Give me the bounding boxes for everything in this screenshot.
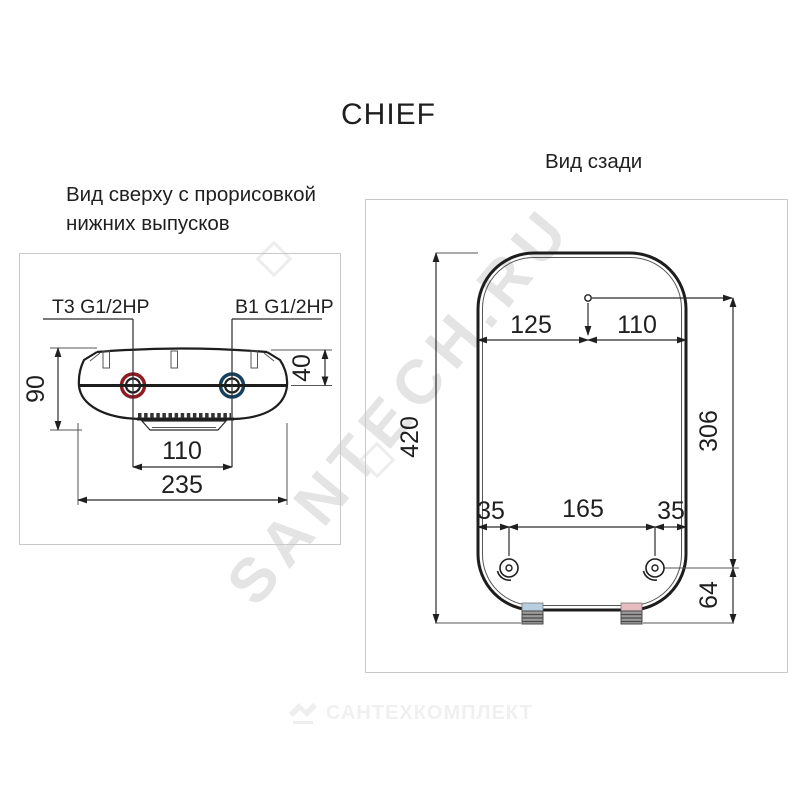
keyhole-slot-left	[498, 559, 519, 580]
page-title: CHIEF	[341, 98, 436, 132]
cold-outlet-label: В1 G1/2HP	[235, 296, 334, 318]
svg-text:35: 35	[477, 497, 505, 525]
dim-306: 306	[695, 298, 733, 568]
rear-view-drawing: 125 110 420 306 64 35 165 35	[365, 199, 788, 673]
hot-outlet-pipe	[621, 603, 642, 624]
footer-brand-watermark: САНТЕХКОМПЛЕКТ	[286, 700, 533, 726]
footer-brand-text: САНТЕХКОМПЛЕКТ	[326, 702, 533, 725]
dim-125-110: 125 110	[478, 311, 686, 340]
top-view-title-line2: нижних выпусков	[66, 209, 316, 238]
rear-view-panel-border	[366, 200, 788, 673]
svg-text:125: 125	[510, 311, 552, 339]
cable-hole	[585, 295, 591, 301]
top-view-drawing: Т3 G1/2HP В1 G1/2HP 90 4	[19, 253, 341, 545]
dim-110: 110	[133, 437, 232, 467]
svg-text:306: 306	[695, 410, 723, 452]
dim-420: 420	[396, 253, 478, 623]
top-view-title: Вид сверху с прорисовкой нижних выпусков	[66, 180, 316, 238]
svg-text:64: 64	[695, 581, 723, 609]
rear-view-title: Вид сзади	[545, 150, 642, 174]
svg-text:35: 35	[657, 497, 685, 525]
dim-90: 90	[22, 348, 97, 430]
heater-body-rear	[478, 253, 686, 610]
svg-text:420: 420	[396, 416, 424, 458]
cold-inlet-pipe	[522, 603, 543, 624]
svg-text:40: 40	[288, 354, 316, 382]
svg-text:110: 110	[617, 311, 657, 339]
bottom-bracket	[142, 421, 226, 430]
dim-35-165-35: 35 165 35	[477, 495, 686, 556]
top-view-title-line1: Вид сверху с прорисовкой	[66, 180, 316, 209]
svg-text:90: 90	[22, 375, 50, 403]
hot-outlet-label: Т3 G1/2HP	[52, 296, 150, 318]
dim-64: 64	[695, 568, 733, 623]
svg-text:165: 165	[562, 495, 604, 523]
mounting-tab	[171, 351, 178, 368]
dim-40: 40	[271, 350, 332, 386]
mounting-tab	[251, 351, 258, 368]
santehkomplekt-logo-icon	[286, 700, 320, 726]
mounting-tab	[103, 351, 110, 368]
svg-text:235: 235	[161, 471, 203, 499]
svg-text:110: 110	[162, 437, 202, 465]
keyhole-slot-right	[644, 559, 665, 580]
tank-outline	[79, 349, 287, 420]
